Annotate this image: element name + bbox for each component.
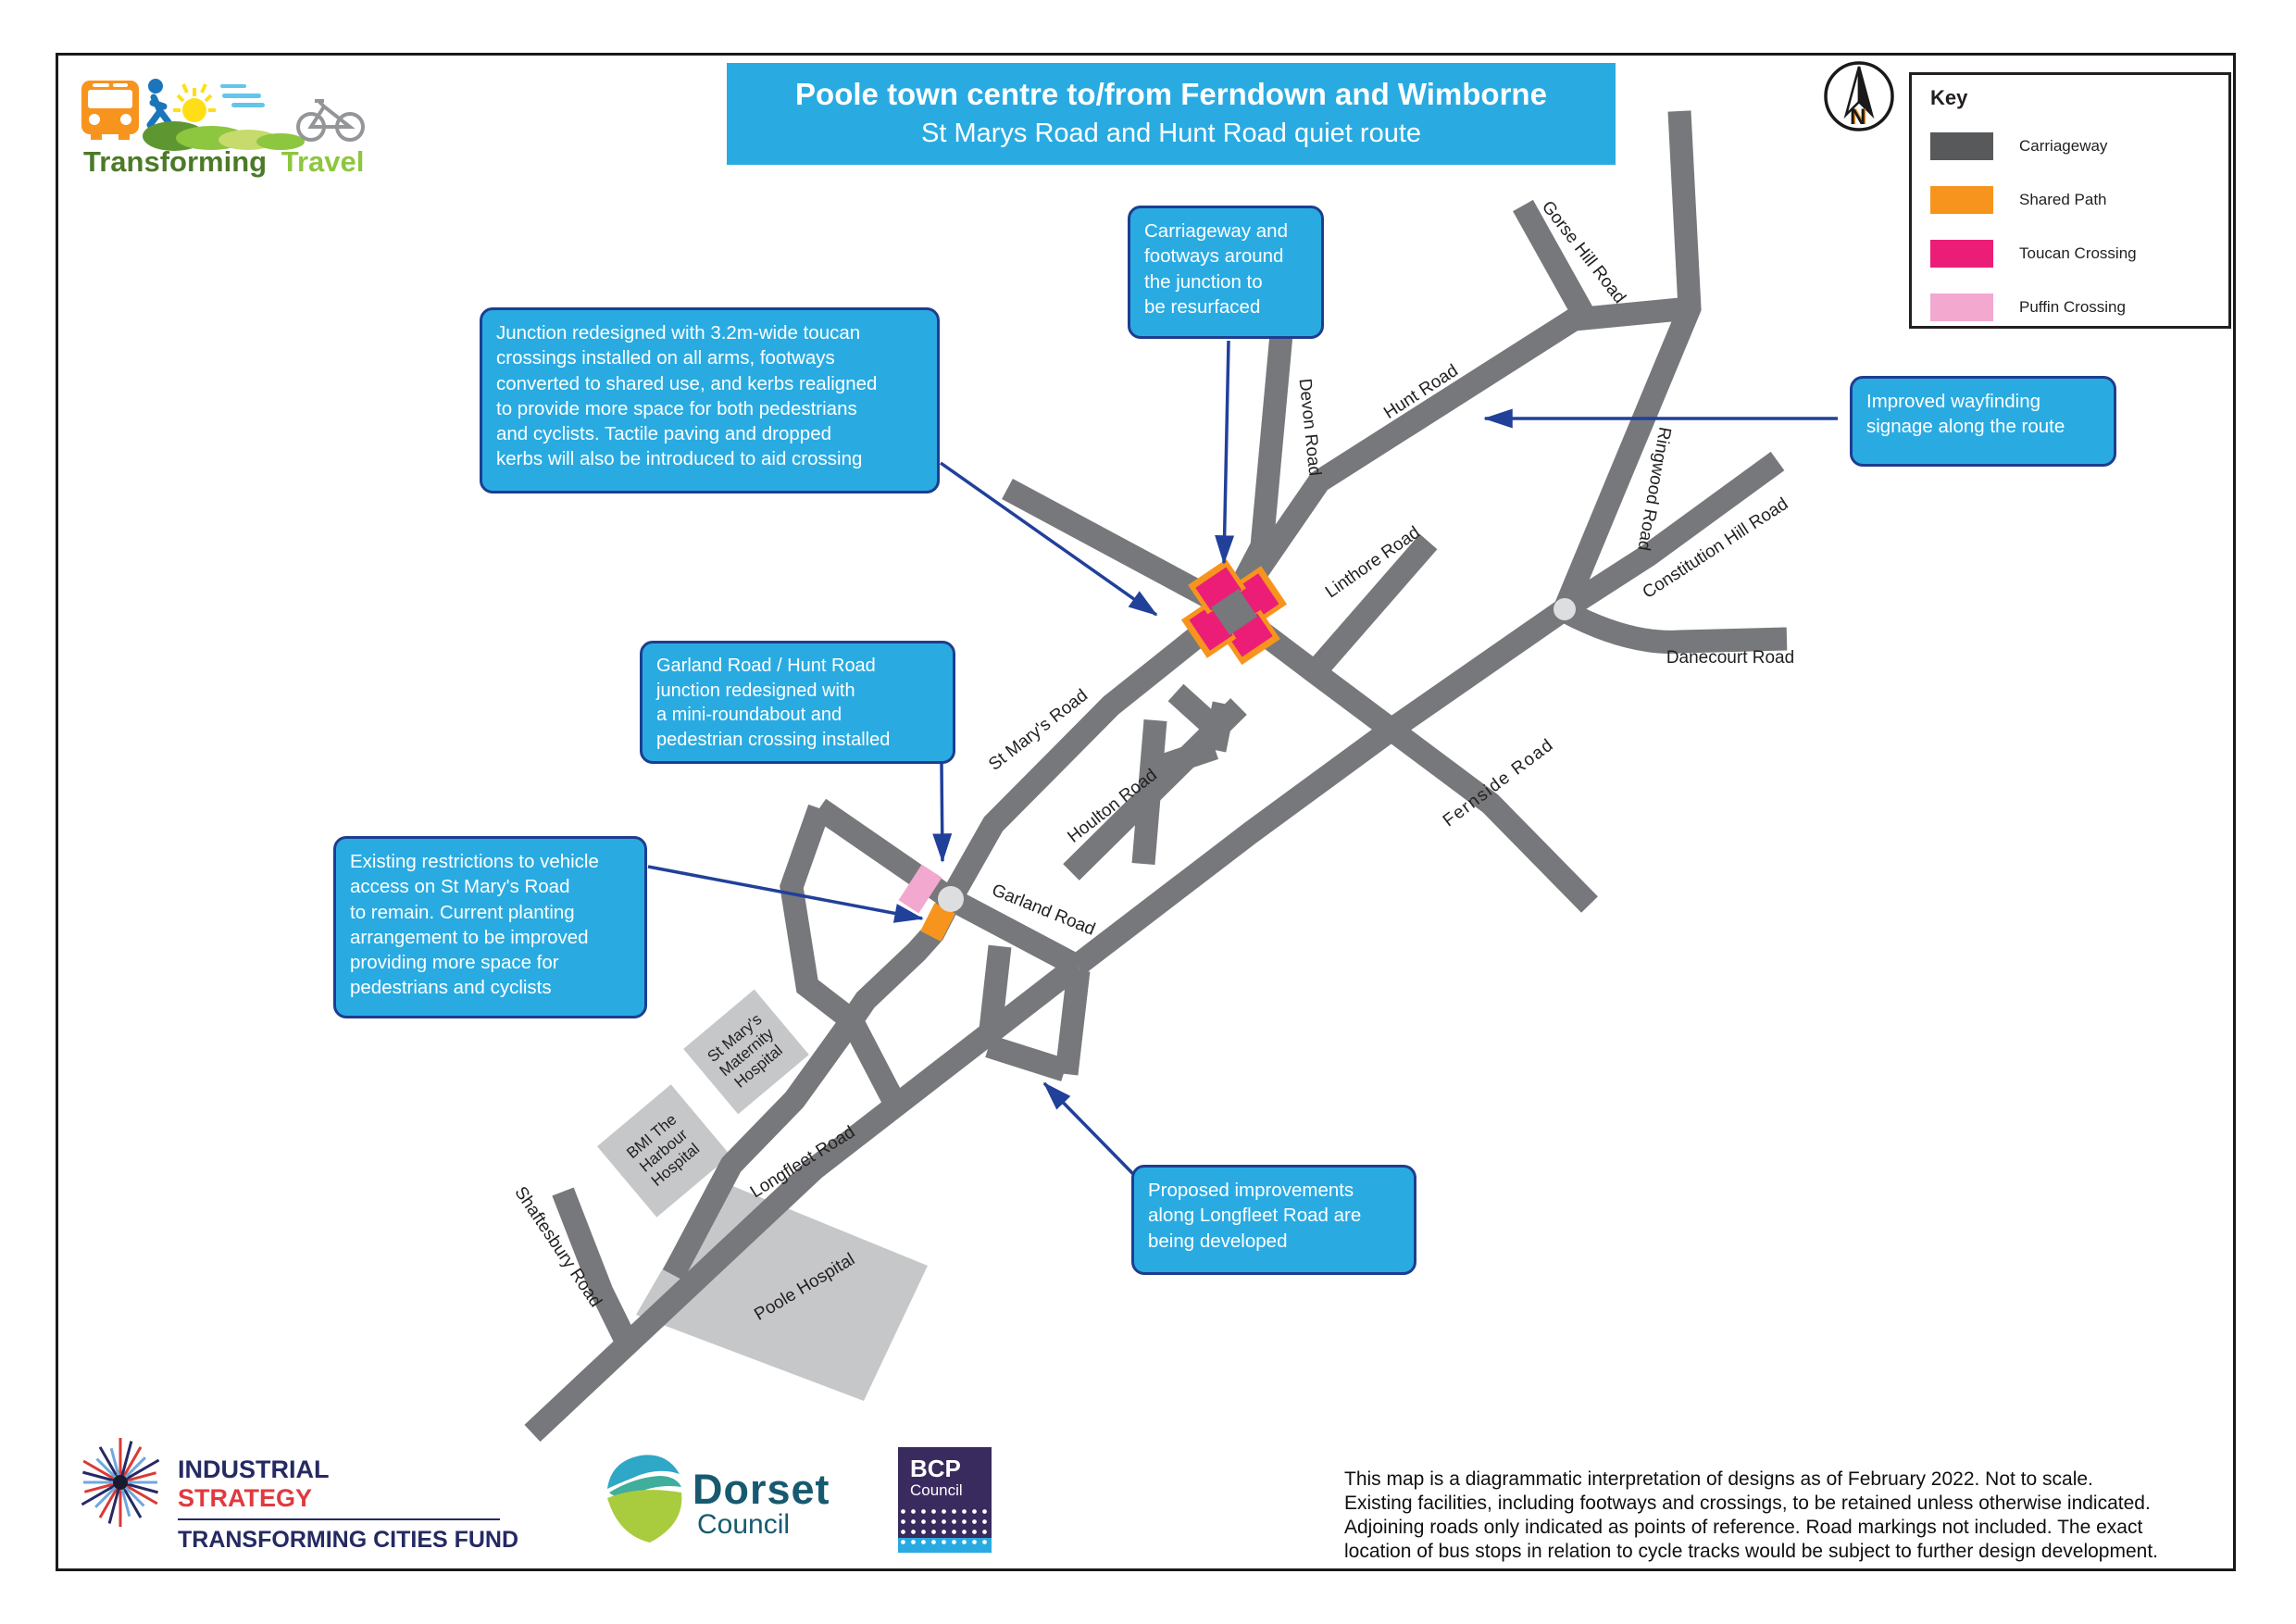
transforming-cities-fund-label: TRANSFORMING CITIES FUND — [178, 1527, 518, 1554]
walking-person-icon — [148, 79, 168, 125]
bus-icon — [81, 81, 139, 140]
callout-existing-restrictions: Existing restrictions to vehicle access … — [333, 836, 647, 1018]
bcp-dots-pattern — [898, 1506, 992, 1545]
carriageway-swatch — [1930, 132, 1993, 160]
map-subtitle: St Marys Road and Hunt Road quiet route — [727, 112, 1616, 149]
dorset-council-name: Dorset — [693, 1466, 830, 1514]
arrow-longfleet — [1044, 1083, 1133, 1174]
label-devon-road: Devon Road — [1295, 378, 1325, 477]
north-compass: N — [1822, 59, 1896, 133]
map-title: Poole town centre to/from Ferndown and W… — [727, 63, 1616, 112]
callout-garland-junction: Garland Road / Hunt Road junction redesi… — [640, 641, 955, 764]
callout-longfleet-improvements: Proposed improvements along Longfleet Ro… — [1131, 1165, 1416, 1275]
road-connector-stub — [1176, 693, 1215, 728]
key-title: Key — [1930, 86, 2228, 110]
industrial-strategy-line1: INDUSTRIAL — [178, 1455, 330, 1484]
key-row-puffin: Puffin Crossing — [1930, 281, 2228, 334]
transforming-travel-logo: Transforming Travel — [81, 69, 387, 181]
road-danecourt — [1565, 611, 1787, 642]
shared-path-swatch — [1930, 186, 1993, 214]
arrow-garland-junction — [942, 763, 942, 861]
compass-n-label: N — [1850, 105, 1865, 130]
key-row-shared-path: Shared Path — [1930, 173, 2228, 227]
road-estate-stub-2 — [1067, 970, 1079, 1074]
map-key: Key Carriageway Shared Path Toucan Cross… — [1909, 72, 2231, 329]
industrial-strategy-starburst-icon — [69, 1432, 171, 1534]
callout-resurfaced: Carriageway and footways around the junc… — [1128, 206, 1324, 339]
road-estate-west — [792, 808, 852, 1020]
toucan-crossing-swatch — [1930, 240, 1993, 268]
map-title-banner: Poole town centre to/from Ferndown and W… — [727, 63, 1616, 165]
logo-text-primary: Transforming — [83, 145, 267, 178]
mini-roundabout — [938, 886, 964, 912]
road-estate-link — [852, 1020, 898, 1109]
puffin-crossing-swatch — [1930, 294, 1993, 321]
sun-icon — [173, 84, 216, 122]
callout-wayfinding: Improved wayfinding signage along the ro… — [1850, 376, 2116, 467]
road-estate-v2 — [1215, 704, 1224, 750]
ringwood-junction-node — [1554, 598, 1576, 620]
map-disclaimer: This map is a diagrammatic interpretatio… — [1344, 1468, 2270, 1564]
dorset-council-sub: Council — [697, 1509, 790, 1541]
bcp-sub: Council — [910, 1482, 992, 1498]
bcp-name: BCP — [910, 1456, 992, 1480]
key-row-carriageway: Carriageway — [1930, 119, 2228, 173]
arrow-resurfaced — [1224, 341, 1229, 563]
page: BMI The Harbour Hospital St Mary's Mater… — [0, 0, 2296, 1624]
label-danecourt-road: Danecourt Road — [1666, 648, 1794, 668]
key-row-toucan: Toucan Crossing — [1930, 227, 2228, 281]
industrial-strategy-line2: STRATEGY — [178, 1484, 312, 1513]
dorset-council-icon — [602, 1450, 687, 1550]
bicycle-icon — [298, 101, 363, 140]
svg-text:Transforming Travel: Transforming Travel — [83, 145, 364, 178]
speed-lines-icon — [220, 84, 265, 107]
logo-text-secondary: Travel — [281, 145, 365, 178]
road-estate-stub-1 — [989, 946, 1000, 1046]
industrial-strategy-divider — [178, 1518, 500, 1520]
road-estate-stub-3 — [989, 1046, 1065, 1070]
bcp-council-logo: BCP Council — [898, 1447, 992, 1553]
callout-junction-redesigned: Junction redesigned with 3.2m-wide touca… — [480, 307, 940, 493]
